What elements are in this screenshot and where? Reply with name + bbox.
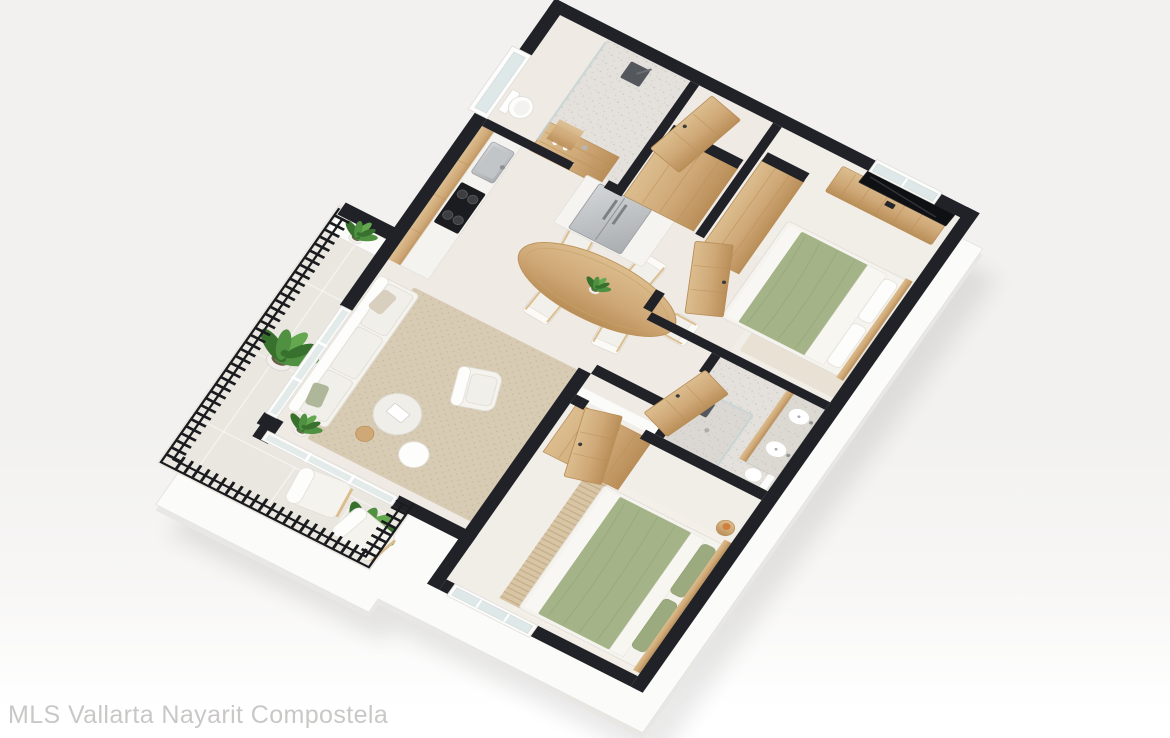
floor-plan-screenshot: MLS Vallarta Nayarit Compostela [0,0,1170,738]
armchair [450,365,504,412]
floor-plan [157,0,981,705]
watermark-text: MLS Vallarta Nayarit Compostela [8,701,388,730]
floor-plan-svg [0,0,1170,738]
